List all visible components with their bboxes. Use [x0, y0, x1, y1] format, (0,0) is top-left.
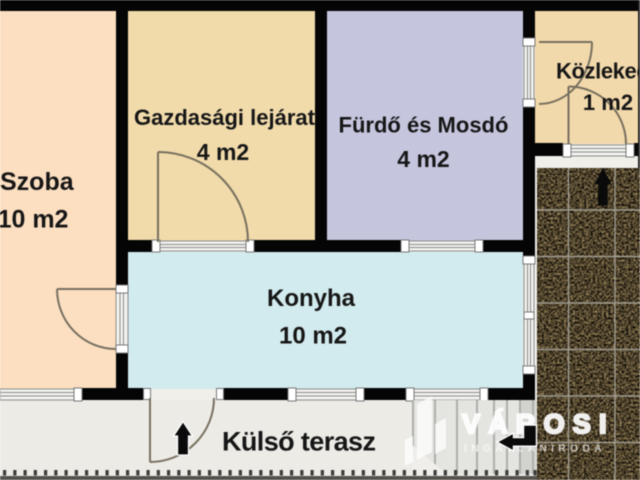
svg-text:Fürdő és Mosdó: Fürdő és Mosdó: [339, 113, 509, 138]
svg-text:10 m2: 10 m2: [279, 323, 347, 350]
svg-text:Gazdasági lejárat: Gazdasági lejárat: [134, 105, 316, 130]
svg-text:VÁROSI: VÁROSI: [462, 408, 615, 439]
svg-text:1 m2: 1 m2: [583, 90, 633, 115]
svg-text:4 m2: 4 m2: [197, 139, 249, 165]
svg-text:4 m2: 4 m2: [397, 146, 449, 172]
svg-text:Konyha: Konyha: [267, 285, 356, 312]
svg-text:Közlekedő: Közlekedő: [556, 59, 640, 84]
svg-text:Szoba: Szoba: [0, 168, 75, 196]
svg-text:10 m2: 10 m2: [0, 206, 68, 234]
svg-text:Külső terasz: Külső terasz: [222, 427, 375, 457]
